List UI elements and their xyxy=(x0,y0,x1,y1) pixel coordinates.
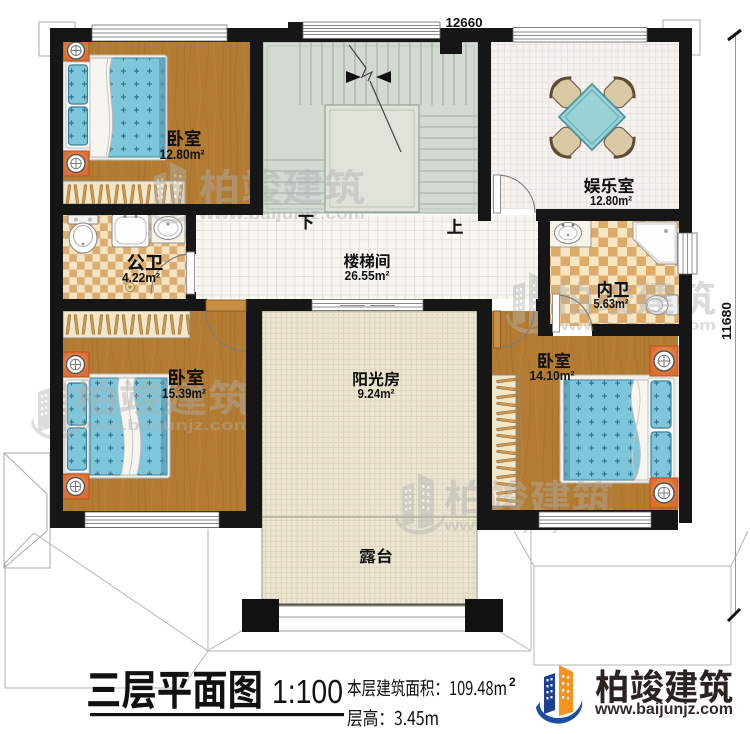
svg-text:2: 2 xyxy=(509,675,516,689)
svg-text:12.80m²: 12.80m² xyxy=(160,147,205,162)
svg-text:11680: 11680 xyxy=(719,302,734,340)
svg-text:5.63m²: 5.63m² xyxy=(594,297,629,311)
svg-text:4.22m²: 4.22m² xyxy=(122,270,161,285)
svg-text:12660: 12660 xyxy=(446,15,483,30)
svg-text:15.39m²: 15.39m² xyxy=(162,386,206,401)
svg-text:12.80m²: 12.80m² xyxy=(590,193,633,208)
svg-text:1:100: 1:100 xyxy=(272,673,343,710)
svg-text:9.24m²: 9.24m² xyxy=(358,387,395,401)
svg-text:www.baijunjz.com: www.baijunjz.com xyxy=(73,417,252,434)
svg-text:26.55m²: 26.55m² xyxy=(345,269,390,283)
svg-text:14.10m²: 14.10m² xyxy=(530,369,575,383)
svg-text:www.baijunjz.com: www.baijunjz.com xyxy=(594,701,733,718)
